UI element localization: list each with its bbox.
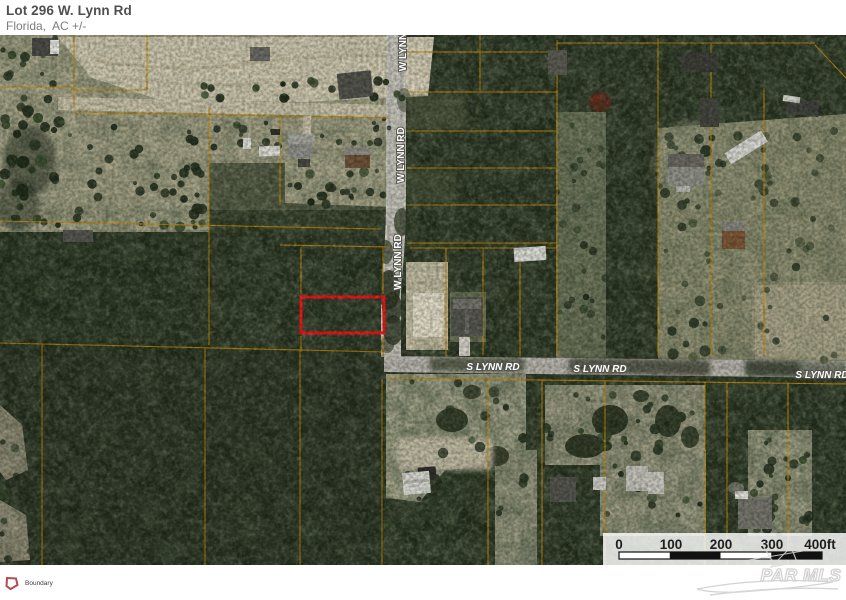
svg-text:S LYNN RD: S LYNN RD (573, 364, 626, 375)
svg-text:100: 100 (660, 537, 683, 552)
svg-text:W LYNN RD: W LYNN RD (396, 127, 407, 183)
svg-text:200: 200 (710, 537, 733, 552)
svg-text:W LYNN RD: W LYNN RD (393, 234, 404, 290)
svg-text:S LYNN RD: S LYNN RD (795, 370, 846, 381)
svg-text:W LYNN: W LYNN (398, 33, 409, 72)
svg-text:400ft: 400ft (804, 537, 836, 552)
svg-text:0: 0 (615, 537, 623, 552)
svg-text:300: 300 (761, 537, 784, 552)
svg-text:S LYNN RD: S LYNN RD (466, 362, 519, 373)
